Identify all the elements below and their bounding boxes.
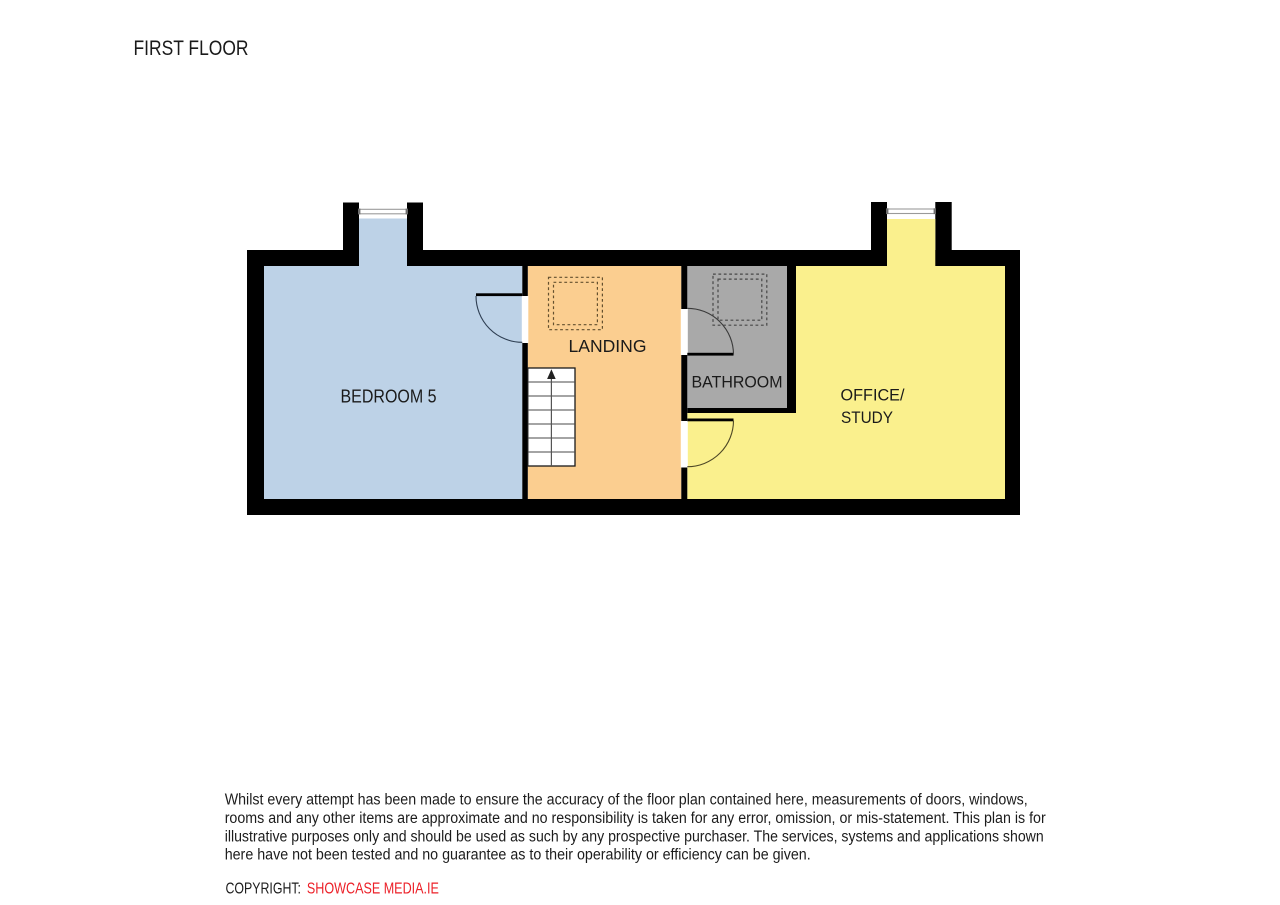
svg-text:STUDY: STUDY [841,408,893,427]
svg-text:OFFICE/: OFFICE/ [841,386,905,405]
svg-text:here have not been tested and: here have not been tested and no guarant… [225,847,811,864]
svg-text:illustrative purposes only and: illustrative purposes only and should be… [225,828,1044,845]
svg-text:COPYRIGHT:: COPYRIGHT: [226,881,302,898]
svg-text:FIRST FLOOR: FIRST FLOOR [134,37,249,60]
svg-text:rooms and any other items are: rooms and any other items are approximat… [225,810,1046,827]
svg-text:BEDROOM 5: BEDROOM 5 [341,386,437,406]
svg-text:BATHROOM: BATHROOM [692,374,783,392]
svg-text:LANDING: LANDING [569,336,647,356]
svg-text:Whilst every attempt has been: Whilst every attempt has been made to en… [225,792,1028,809]
svg-text:SHOWCASE MEDIA.IE: SHOWCASE MEDIA.IE [307,881,439,898]
